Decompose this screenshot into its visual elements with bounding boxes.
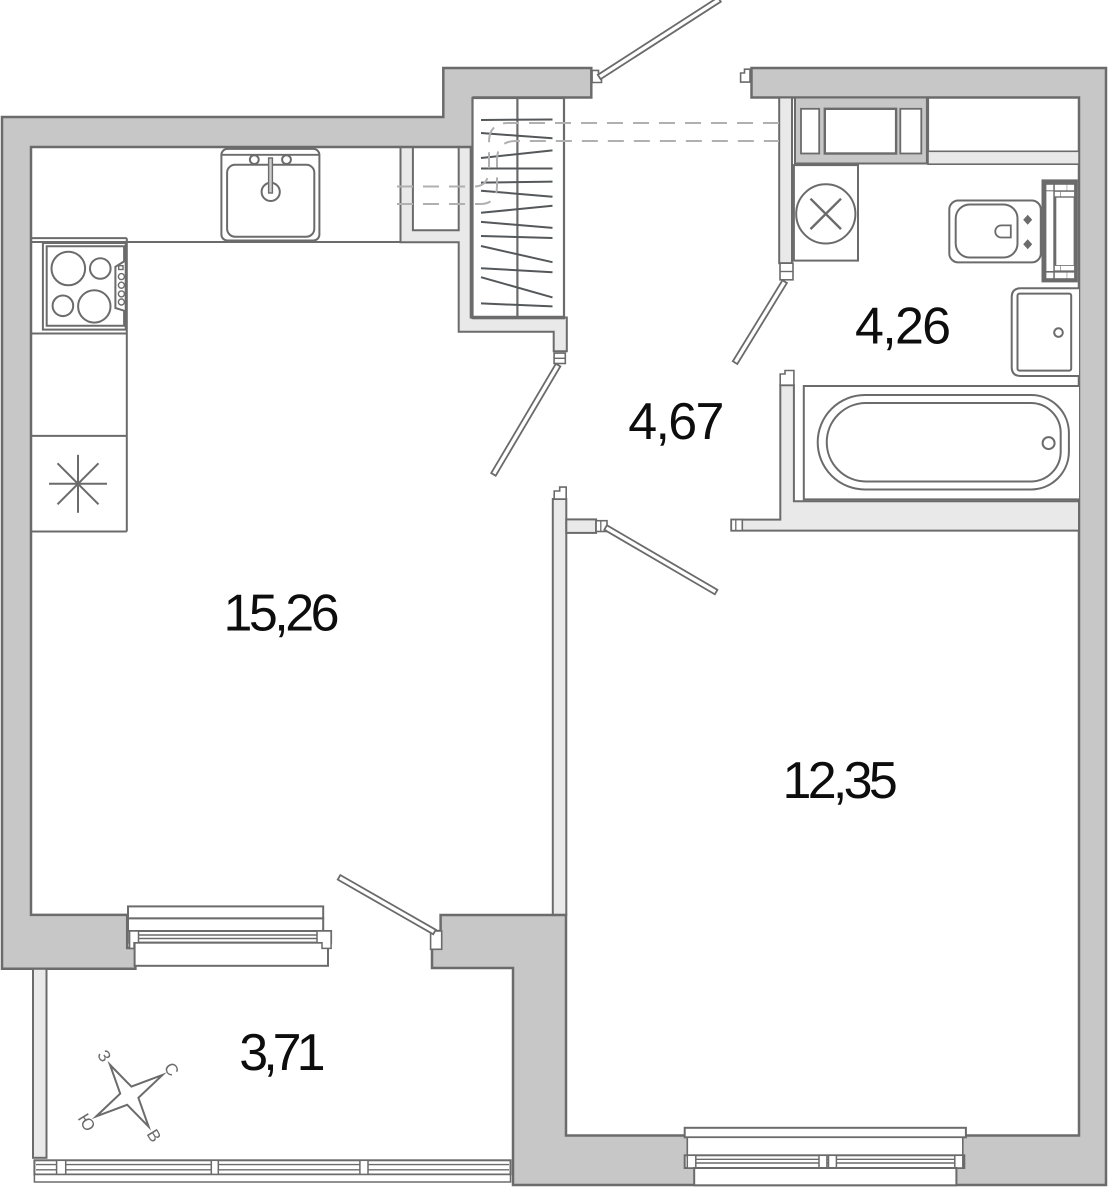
svg-text:4,67: 4,67 <box>628 393 722 451</box>
svg-text:3,71: 3,71 <box>239 1024 323 1082</box>
svg-text:12,35: 12,35 <box>782 752 895 810</box>
svg-text:15,26: 15,26 <box>223 585 337 643</box>
svg-text:4,26: 4,26 <box>855 298 949 356</box>
